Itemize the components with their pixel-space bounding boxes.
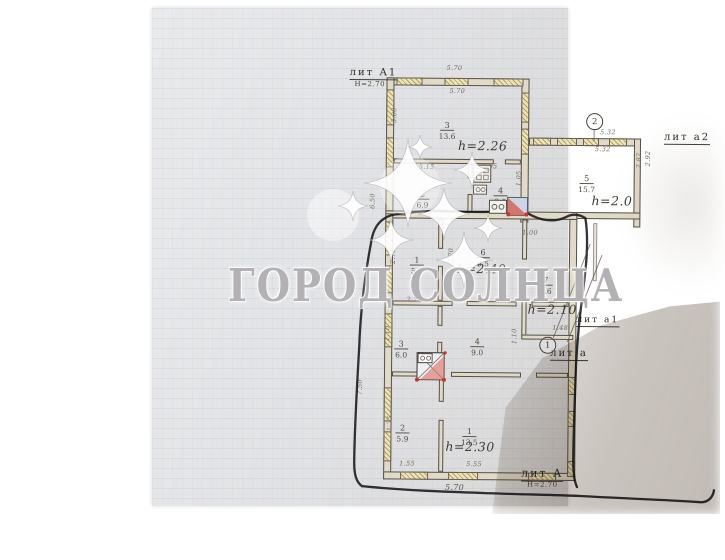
- watermark-text: ГОРОД СОЛНЦА: [228, 262, 525, 310]
- scanned-floor-plan-screenshot: 3 13.6 2 6.9 4 3.9 5 15.7 1 5.7 6 8.5: [0, 0, 725, 560]
